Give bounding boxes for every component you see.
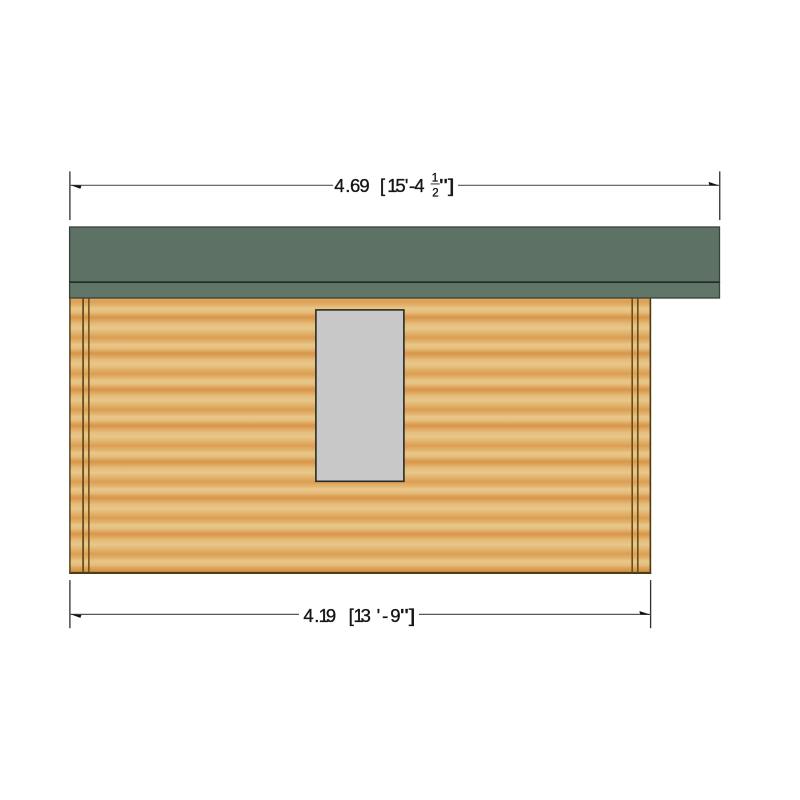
svg-text:"]: "] xyxy=(439,175,454,196)
svg-text:2: 2 xyxy=(432,188,438,200)
svg-text:4.69 [15'-4: 4.69 [15'-4 xyxy=(334,175,424,196)
svg-text:4.19 [13'-9: 4.19 [13'-9 xyxy=(303,605,400,626)
svg-text:"]: "] xyxy=(400,605,415,626)
svg-text:1: 1 xyxy=(432,173,438,185)
